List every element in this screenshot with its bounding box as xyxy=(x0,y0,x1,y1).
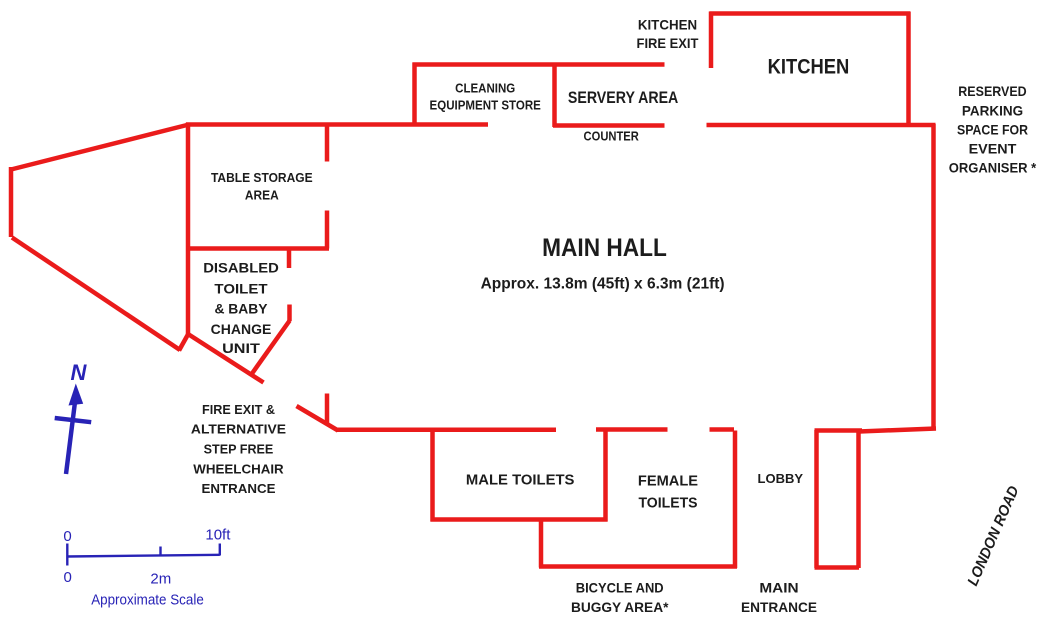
svg-text:ENTRANCE: ENTRANCE xyxy=(202,481,276,496)
svg-text:BUGGY AREA*: BUGGY AREA* xyxy=(571,599,669,615)
svg-text:FIRE EXIT: FIRE EXIT xyxy=(637,35,699,51)
svg-text:ALTERNATIVE: ALTERNATIVE xyxy=(191,422,286,437)
svg-text:PARKING: PARKING xyxy=(962,102,1023,118)
svg-text:2m: 2m xyxy=(150,571,171,588)
svg-text:Approximate Scale: Approximate Scale xyxy=(91,593,204,609)
svg-text:COUNTER: COUNTER xyxy=(584,130,639,144)
svg-text:SPACE FOR: SPACE FOR xyxy=(957,121,1028,137)
svg-text:FEMALE: FEMALE xyxy=(638,474,698,490)
svg-text:WHEELCHAIR: WHEELCHAIR xyxy=(193,462,284,477)
svg-text:Approx. 13.8m (45ft) x 6.3m (: Approx. 13.8m (45ft) x 6.3m (21ft) xyxy=(481,276,725,293)
svg-text:0: 0 xyxy=(64,569,72,586)
svg-text:RESERVED: RESERVED xyxy=(958,83,1026,99)
svg-text:TOILETS: TOILETS xyxy=(638,496,697,512)
svg-text:BICYCLE AND: BICYCLE AND xyxy=(576,580,664,596)
svg-text:ORGANISER *: ORGANISER * xyxy=(949,160,1037,176)
svg-text:SERVERY AREA: SERVERY AREA xyxy=(568,89,678,107)
svg-text:STEP FREE: STEP FREE xyxy=(204,442,274,457)
svg-text:MAIN HALL: MAIN HALL xyxy=(542,234,667,262)
svg-text:10ft: 10ft xyxy=(205,527,231,544)
svg-text:MAIN: MAIN xyxy=(759,580,798,596)
svg-text:CHANGE: CHANGE xyxy=(211,321,272,337)
svg-text:EQUIPMENT STORE: EQUIPMENT STORE xyxy=(430,98,542,113)
svg-text:AREA: AREA xyxy=(245,188,279,202)
svg-text:0: 0 xyxy=(63,528,71,545)
svg-text:KITCHEN: KITCHEN xyxy=(638,16,697,32)
svg-text:KITCHEN: KITCHEN xyxy=(768,55,850,79)
svg-text:EVENT: EVENT xyxy=(969,141,1017,157)
svg-text:TOILET: TOILET xyxy=(214,280,268,296)
svg-text:TABLE STORAGE: TABLE STORAGE xyxy=(211,171,313,185)
svg-text:LOBBY: LOBBY xyxy=(758,471,804,486)
svg-text:CLEANING: CLEANING xyxy=(455,80,515,95)
svg-text:FIRE EXIT &: FIRE EXIT & xyxy=(202,402,275,417)
svg-text:& BABY: & BABY xyxy=(214,301,268,317)
svg-text:DISABLED: DISABLED xyxy=(203,259,279,275)
svg-text:MALE TOILETS: MALE TOILETS xyxy=(466,472,575,488)
svg-text:ENTRANCE: ENTRANCE xyxy=(741,599,817,615)
svg-text:UNIT: UNIT xyxy=(222,340,260,356)
svg-text:N: N xyxy=(71,360,88,385)
